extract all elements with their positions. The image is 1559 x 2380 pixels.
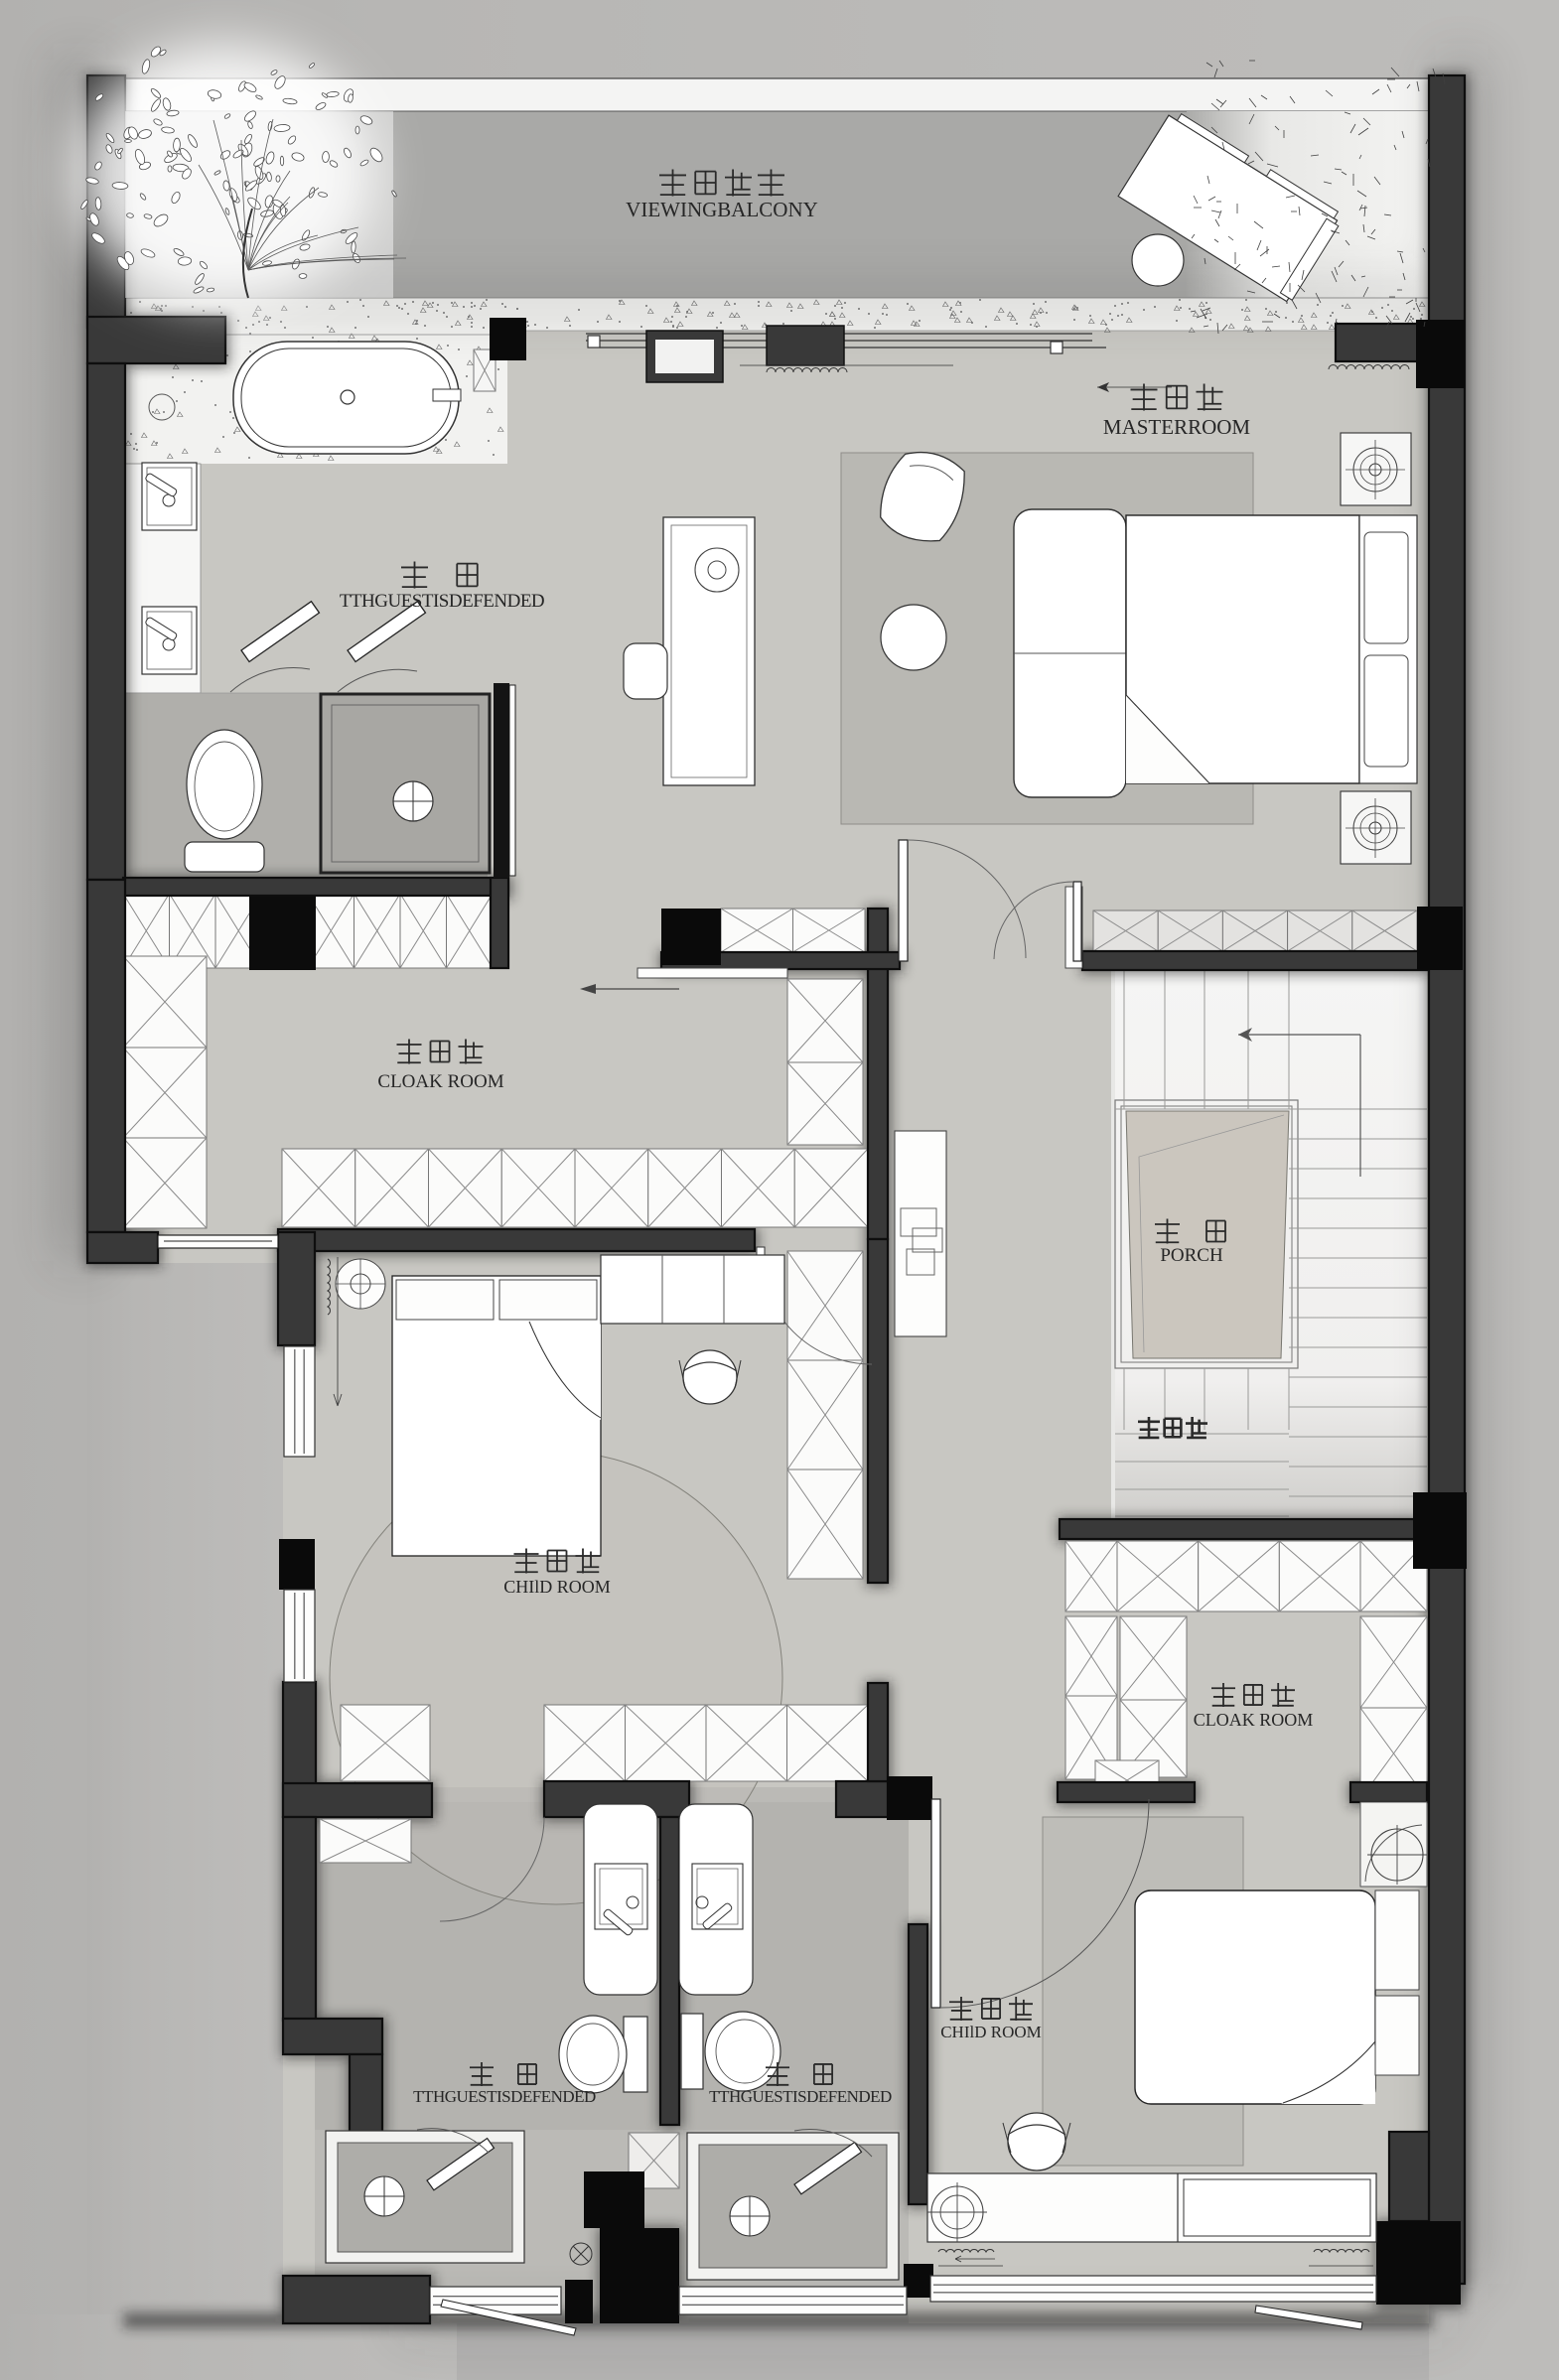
svg-text:CLOAK ROOM: CLOAK ROOM — [377, 1071, 503, 1092]
svg-text:TTHGUESTISDEFENDED: TTHGUESTISDEFENDED — [340, 591, 544, 612]
svg-text:TTHGUESTISDEFENDED: TTHGUESTISDEFENDED — [413, 2087, 596, 2106]
svg-text:CHIlD ROOM: CHIlD ROOM — [503, 1577, 611, 1597]
svg-text:VIEWINGBALCONY: VIEWINGBALCONY — [626, 198, 818, 221]
svg-text:TTHGUESTISDEFENDED: TTHGUESTISDEFENDED — [709, 2087, 892, 2106]
svg-text:PORCH: PORCH — [1160, 1245, 1223, 1266]
svg-text:CHIlD ROOM: CHIlD ROOM — [940, 2023, 1042, 2041]
svg-text:CLOAK ROOM: CLOAK ROOM — [1194, 1710, 1314, 1730]
svg-text:MASTERROOM: MASTERROOM — [1103, 415, 1251, 439]
